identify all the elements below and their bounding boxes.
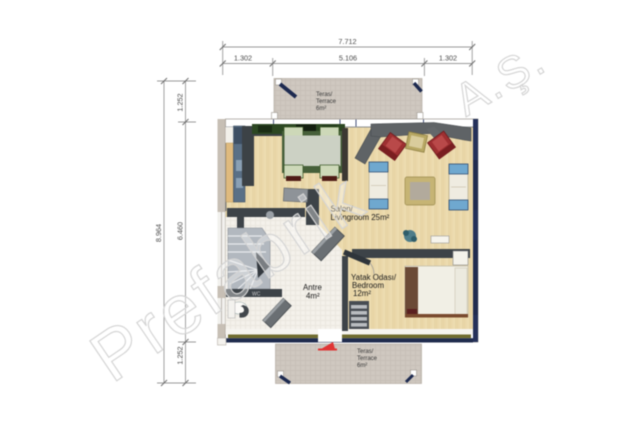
svg-text:6m²: 6m² (316, 106, 326, 112)
svg-text:5.106: 5.106 (339, 54, 357, 63)
svg-text:1.302: 1.302 (439, 54, 457, 63)
svg-text:Terrace: Terrace (316, 99, 337, 105)
svg-text:6m²: 6m² (357, 363, 367, 369)
svg-text:Terrace: Terrace (357, 356, 378, 362)
svg-text:1.302: 1.302 (234, 54, 252, 63)
svg-text:1.252: 1.252 (176, 93, 185, 111)
svg-text:12m²: 12m² (353, 289, 371, 298)
svg-text:Teras/: Teras/ (357, 349, 374, 355)
svg-text:8.964: 8.964 (154, 224, 163, 242)
svg-text:Teras/: Teras/ (316, 92, 333, 98)
svg-text:6.460: 6.460 (176, 222, 185, 240)
svg-text:4m²: 4m² (306, 292, 320, 301)
svg-text:7.712: 7.712 (338, 37, 356, 46)
